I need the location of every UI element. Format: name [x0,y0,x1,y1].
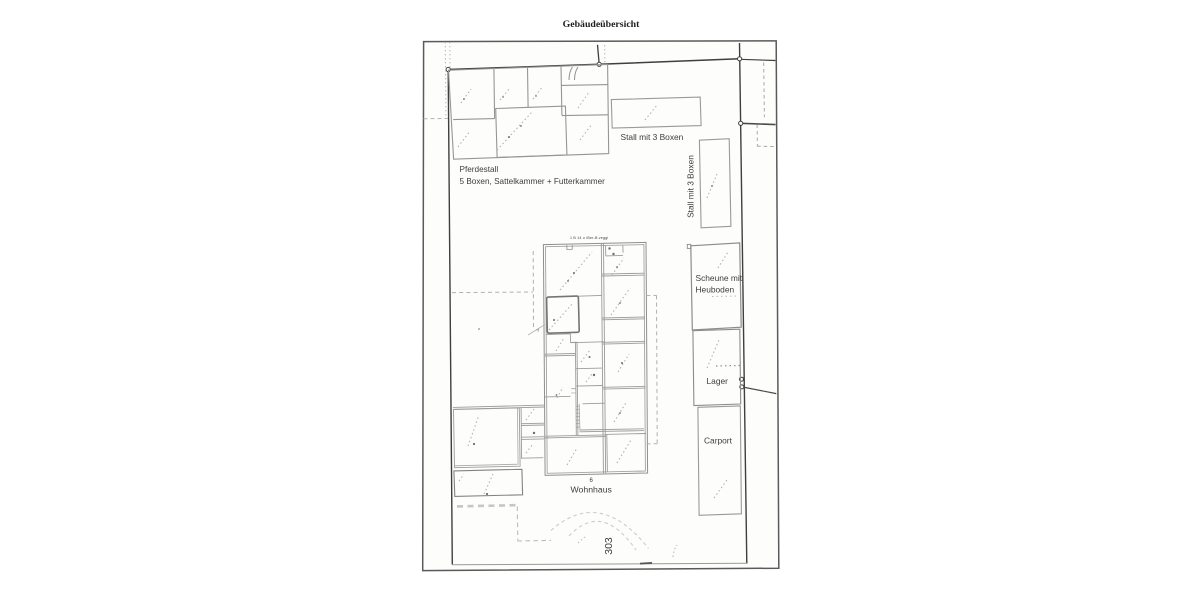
svg-text:Gebäudeübersicht: Gebäudeübersicht [563,19,640,30]
svg-text:Carport: Carport [704,436,733,446]
svg-text:Stall mit 3 Boxen: Stall mit 3 Boxen [686,155,696,218]
svg-text:303: 303 [603,537,615,555]
svg-text:Heuboden: Heuboden [696,285,735,295]
svg-text:5 Boxen, Sattelkammer + Futter: 5 Boxen, Sattelkammer + Futterkammer [460,177,606,186]
svg-text:Pferdestall: Pferdestall [460,165,499,174]
svg-text:Stall mit 3 Boxen: Stall mit 3 Boxen [621,132,684,142]
svg-text:Lager: Lager [707,376,729,386]
svg-text:Wohnhaus: Wohnhaus [571,485,613,495]
svg-text:1 B 14 u /Ber-B.veggi: 1 B 14 u /Ber-B.veggi [570,236,608,240]
svg-text:Scheune mit: Scheune mit [696,273,743,283]
